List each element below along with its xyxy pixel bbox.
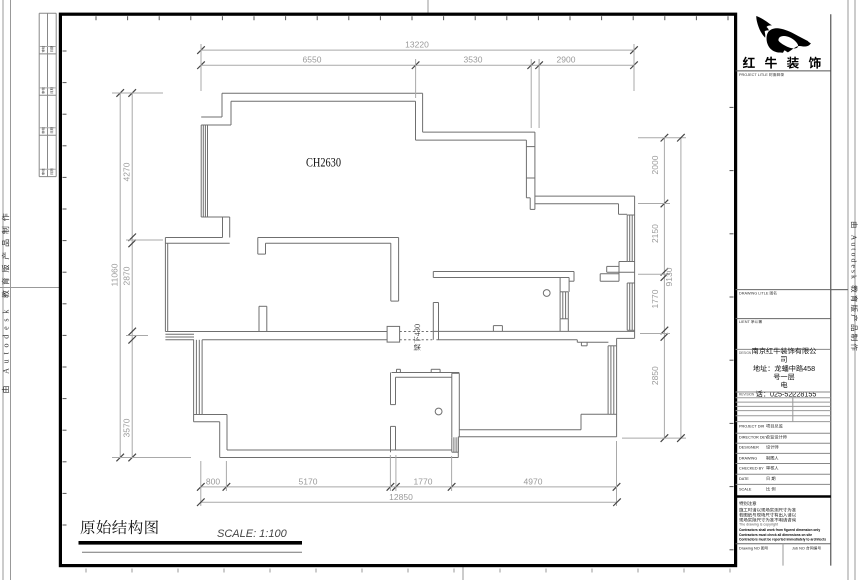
svg-text:6550: 6550 — [303, 55, 322, 65]
svg-text:项目总监: 项目总监 — [766, 424, 783, 430]
svg-text:3570: 3570 — [122, 418, 132, 437]
svg-text:由 Autodesk 教育版产品制作: 由 Autodesk 教育版产品制作 — [849, 221, 860, 353]
svg-text:Contractors must be reported i: Contractors must be reported immediately… — [739, 537, 826, 541]
svg-text:总监设计师: 总监设计师 — [766, 434, 787, 440]
svg-text:Job NO 合同编号: Job NO 合同编号 — [792, 545, 821, 550]
svg-text:13220: 13220 — [405, 40, 429, 50]
svg-text:12850: 12850 — [389, 492, 413, 502]
svg-text:制图人: 制图人 — [766, 455, 779, 461]
svg-text:REVISION: REVISION — [739, 392, 755, 396]
svg-text:日期: 日期 — [49, 87, 54, 94]
svg-text:1770: 1770 — [650, 289, 660, 308]
svg-text:日 期: 日 期 — [766, 476, 776, 482]
svg-text:DIRECTOR DEY: DIRECTOR DEY — [739, 435, 768, 439]
svg-text:梁下430: 梁下430 — [412, 324, 423, 351]
svg-text:Drawing NO 图号: Drawing NO 图号 — [739, 545, 769, 550]
svg-text:PROJECT DIR: PROJECT DIR — [739, 425, 765, 429]
svg-text:2000: 2000 — [650, 155, 660, 174]
svg-text:SCALE: SCALE — [739, 487, 752, 491]
svg-text:DRAWING: DRAWING — [739, 456, 757, 460]
svg-text:9130: 9130 — [664, 267, 674, 286]
svg-text:DATE: DATE — [739, 477, 749, 481]
svg-text:SCALE: 1:100: SCALE: 1:100 — [217, 528, 288, 540]
svg-text:2900: 2900 — [557, 55, 576, 65]
svg-text:红牛装饰: 红牛装饰 — [743, 53, 831, 72]
svg-text:4970: 4970 — [524, 477, 543, 487]
svg-text:日期: 日期 — [49, 126, 54, 133]
svg-text:2870: 2870 — [122, 266, 132, 285]
svg-text:审核: 审核 — [41, 87, 46, 94]
svg-text:11060: 11060 — [110, 263, 120, 286]
svg-text:比 例: 比 例 — [766, 486, 776, 492]
svg-text:审核: 审核 — [41, 168, 46, 175]
svg-text:DRAWING LITLE 图名: DRAWING LITLE 图名 — [739, 290, 777, 295]
svg-text:特别注意: 特别注意 — [739, 501, 757, 507]
svg-text:1770: 1770 — [414, 477, 433, 487]
svg-text:800: 800 — [206, 477, 220, 487]
svg-text:日期: 日期 — [49, 168, 54, 175]
svg-text:审核: 审核 — [41, 126, 46, 133]
svg-text:Contractors shall work from fi: Contractors shall work from figured dime… — [739, 528, 820, 532]
svg-text:The drawing is copyright: The drawing is copyright — [739, 523, 778, 527]
svg-text:CHECKED BY: CHECKED BY — [739, 466, 764, 470]
svg-text:LIENT 承认署: LIENT 承认署 — [739, 319, 762, 324]
svg-text:原始结构图: 原始结构图 — [80, 516, 160, 538]
svg-text:DESIGN: DESIGN — [739, 351, 752, 355]
svg-text:2850: 2850 — [650, 366, 660, 385]
svg-text:CH2630: CH2630 — [306, 155, 341, 170]
svg-text:DESIGNER: DESIGNER — [739, 446, 759, 450]
svg-text:设计师: 设计师 — [766, 445, 779, 451]
svg-text:审核: 审核 — [41, 45, 46, 52]
svg-text:3530: 3530 — [464, 55, 483, 65]
svg-text:5170: 5170 — [299, 477, 318, 487]
svg-text:2150: 2150 — [650, 224, 660, 243]
svg-text:审核人: 审核人 — [766, 465, 779, 471]
svg-text:PROJECT LITLE 封面目录: PROJECT LITLE 封面目录 — [739, 72, 784, 77]
svg-text:4270: 4270 — [122, 162, 132, 181]
svg-text:日期: 日期 — [49, 45, 54, 52]
svg-text:由 Autodesk 教育版产品制作: 由 Autodesk 教育版产品制作 — [0, 208, 11, 393]
